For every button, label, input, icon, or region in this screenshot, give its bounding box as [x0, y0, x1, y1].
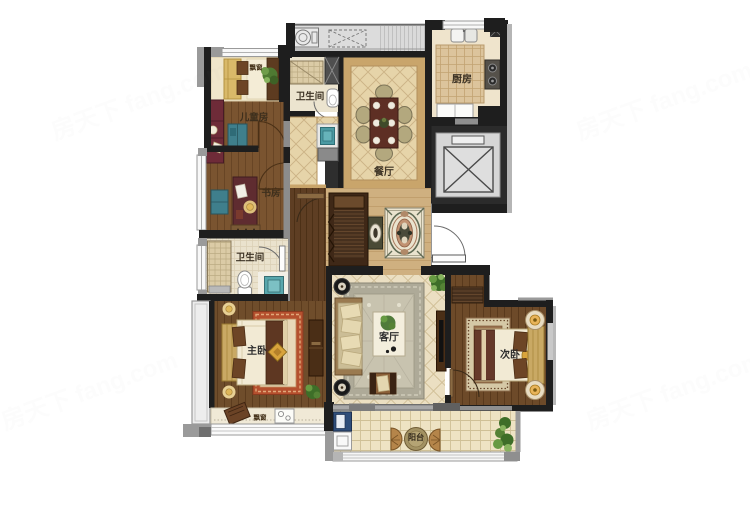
svg-text:卫生间: 卫生间 — [236, 252, 265, 264]
svg-text:飘窗: 飘窗 — [250, 63, 264, 72]
svg-text:客厅: 客厅 — [378, 331, 399, 344]
svg-text:主卧: 主卧 — [247, 344, 267, 357]
svg-text:次卧: 次卧 — [500, 348, 520, 361]
svg-text:阳台: 阳台 — [408, 432, 424, 442]
svg-text:卫生间: 卫生间 — [296, 91, 325, 103]
svg-text:厨房: 厨房 — [452, 73, 472, 86]
svg-text:餐厅: 餐厅 — [373, 165, 394, 178]
svg-text:飘窗: 飘窗 — [254, 413, 268, 422]
